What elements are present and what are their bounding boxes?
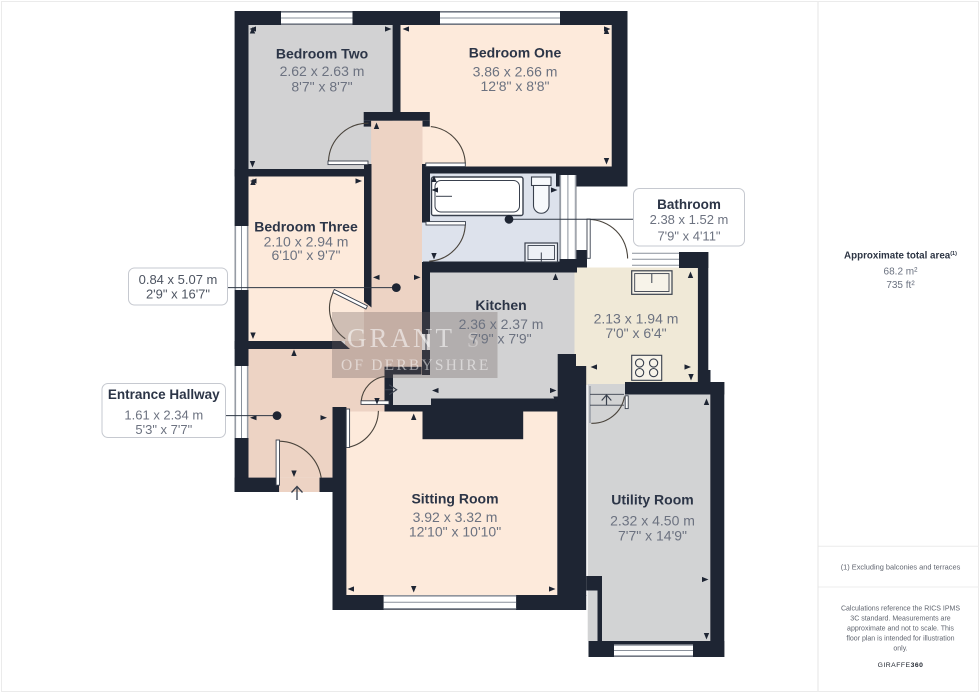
svg-text:5'3" x 7'7": 5'3" x 7'7"	[135, 422, 192, 437]
svg-text:1.61 x 2.34 m: 1.61 x 2.34 m	[124, 408, 203, 423]
svg-text:approximate and not to scale.: approximate and not to scale. This	[847, 626, 954, 633]
svg-text:12'8" x 8'8": 12'8" x 8'8"	[481, 78, 550, 94]
svg-text:7'0" x 6'4": 7'0" x 6'4"	[605, 325, 666, 341]
svg-text:only.: only.	[893, 646, 907, 653]
svg-text:Bedroom One: Bedroom One	[469, 45, 562, 61]
svg-text:7'7" x 14'9": 7'7" x 14'9"	[618, 528, 687, 544]
svg-text:Bathroom: Bathroom	[657, 197, 721, 212]
svg-text:12'10" x 10'10": 12'10" x 10'10"	[409, 524, 501, 540]
svg-text:Utility Room: Utility Room	[611, 492, 693, 508]
svg-text:735 ft²: 735 ft²	[886, 280, 915, 291]
svg-text:Entrance Hallway: Entrance Hallway	[108, 387, 220, 402]
svg-text:Calculations reference the RIC: Calculations reference the RICS IPMS	[841, 606, 960, 613]
svg-text:2.62 x 2.63 m: 2.62 x 2.63 m	[280, 63, 365, 79]
svg-text:Kitchen: Kitchen	[475, 297, 526, 313]
svg-text:Sitting Room: Sitting Room	[411, 491, 498, 507]
svg-text:(1) Excluding balconies and te: (1) Excluding balconies and terraces	[841, 563, 961, 572]
svg-text:8'7" x 8'7": 8'7" x 8'7"	[291, 79, 352, 95]
svg-text:68.2 m²: 68.2 m²	[884, 267, 919, 278]
svg-text:Approximate total area(1): Approximate total area(1)	[844, 251, 957, 262]
svg-text:0.84 x 5.07 m: 0.84 x 5.07 m	[139, 272, 218, 287]
svg-text:GIRAFFE360: GIRAFFE360	[878, 662, 924, 669]
svg-text:2.32 x 4.50 m: 2.32 x 4.50 m	[610, 513, 695, 529]
svg-text:2'9" x 16'7": 2'9" x 16'7"	[146, 287, 210, 302]
svg-text:GRANT: GRANT	[347, 323, 455, 353]
svg-text:2.38 x 1.52 m: 2.38 x 1.52 m	[650, 212, 729, 227]
svg-text:7'9" x 4'11": 7'9" x 4'11"	[657, 229, 720, 244]
svg-text:3C standard. Measurements are: 3C standard. Measurements are	[850, 616, 950, 623]
svg-text:6'10" x 9'7": 6'10" x 9'7"	[272, 247, 341, 263]
svg-text:Bedroom Three: Bedroom Three	[254, 219, 358, 235]
svg-text:7'9" x 7'9": 7'9" x 7'9"	[470, 331, 531, 347]
svg-text:Bedroom Two: Bedroom Two	[276, 46, 368, 62]
svg-text:floor plan is intended for ill: floor plan is intended for illustration	[846, 636, 954, 643]
svg-text:OF DERBYSHIRE: OF DERBYSHIRE	[341, 357, 491, 374]
